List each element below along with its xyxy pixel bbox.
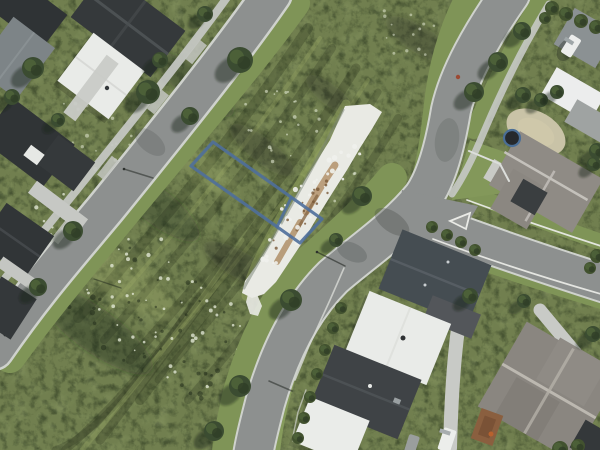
hedge-icon	[304, 391, 316, 403]
hedge-icon	[311, 368, 323, 380]
map-viewport[interactable]	[0, 0, 600, 450]
red-object	[456, 75, 460, 79]
hedge-icon	[539, 12, 551, 24]
trampoline	[504, 130, 520, 146]
hedge-icon	[319, 344, 331, 356]
hedge-icon	[298, 412, 310, 424]
hedge-icon	[559, 7, 573, 21]
hedge-icon	[574, 14, 588, 28]
hedge-icon	[327, 322, 339, 334]
hedge-icon	[469, 244, 481, 256]
hedge-icon	[441, 229, 453, 241]
hedge-icon	[335, 302, 347, 314]
aerial-photo	[0, 0, 600, 450]
hedge-icon	[292, 432, 304, 444]
hedge-icon	[455, 236, 467, 248]
hedge-icon	[426, 221, 438, 233]
scene-layers	[0, 0, 600, 450]
hedge-icon	[584, 262, 596, 274]
